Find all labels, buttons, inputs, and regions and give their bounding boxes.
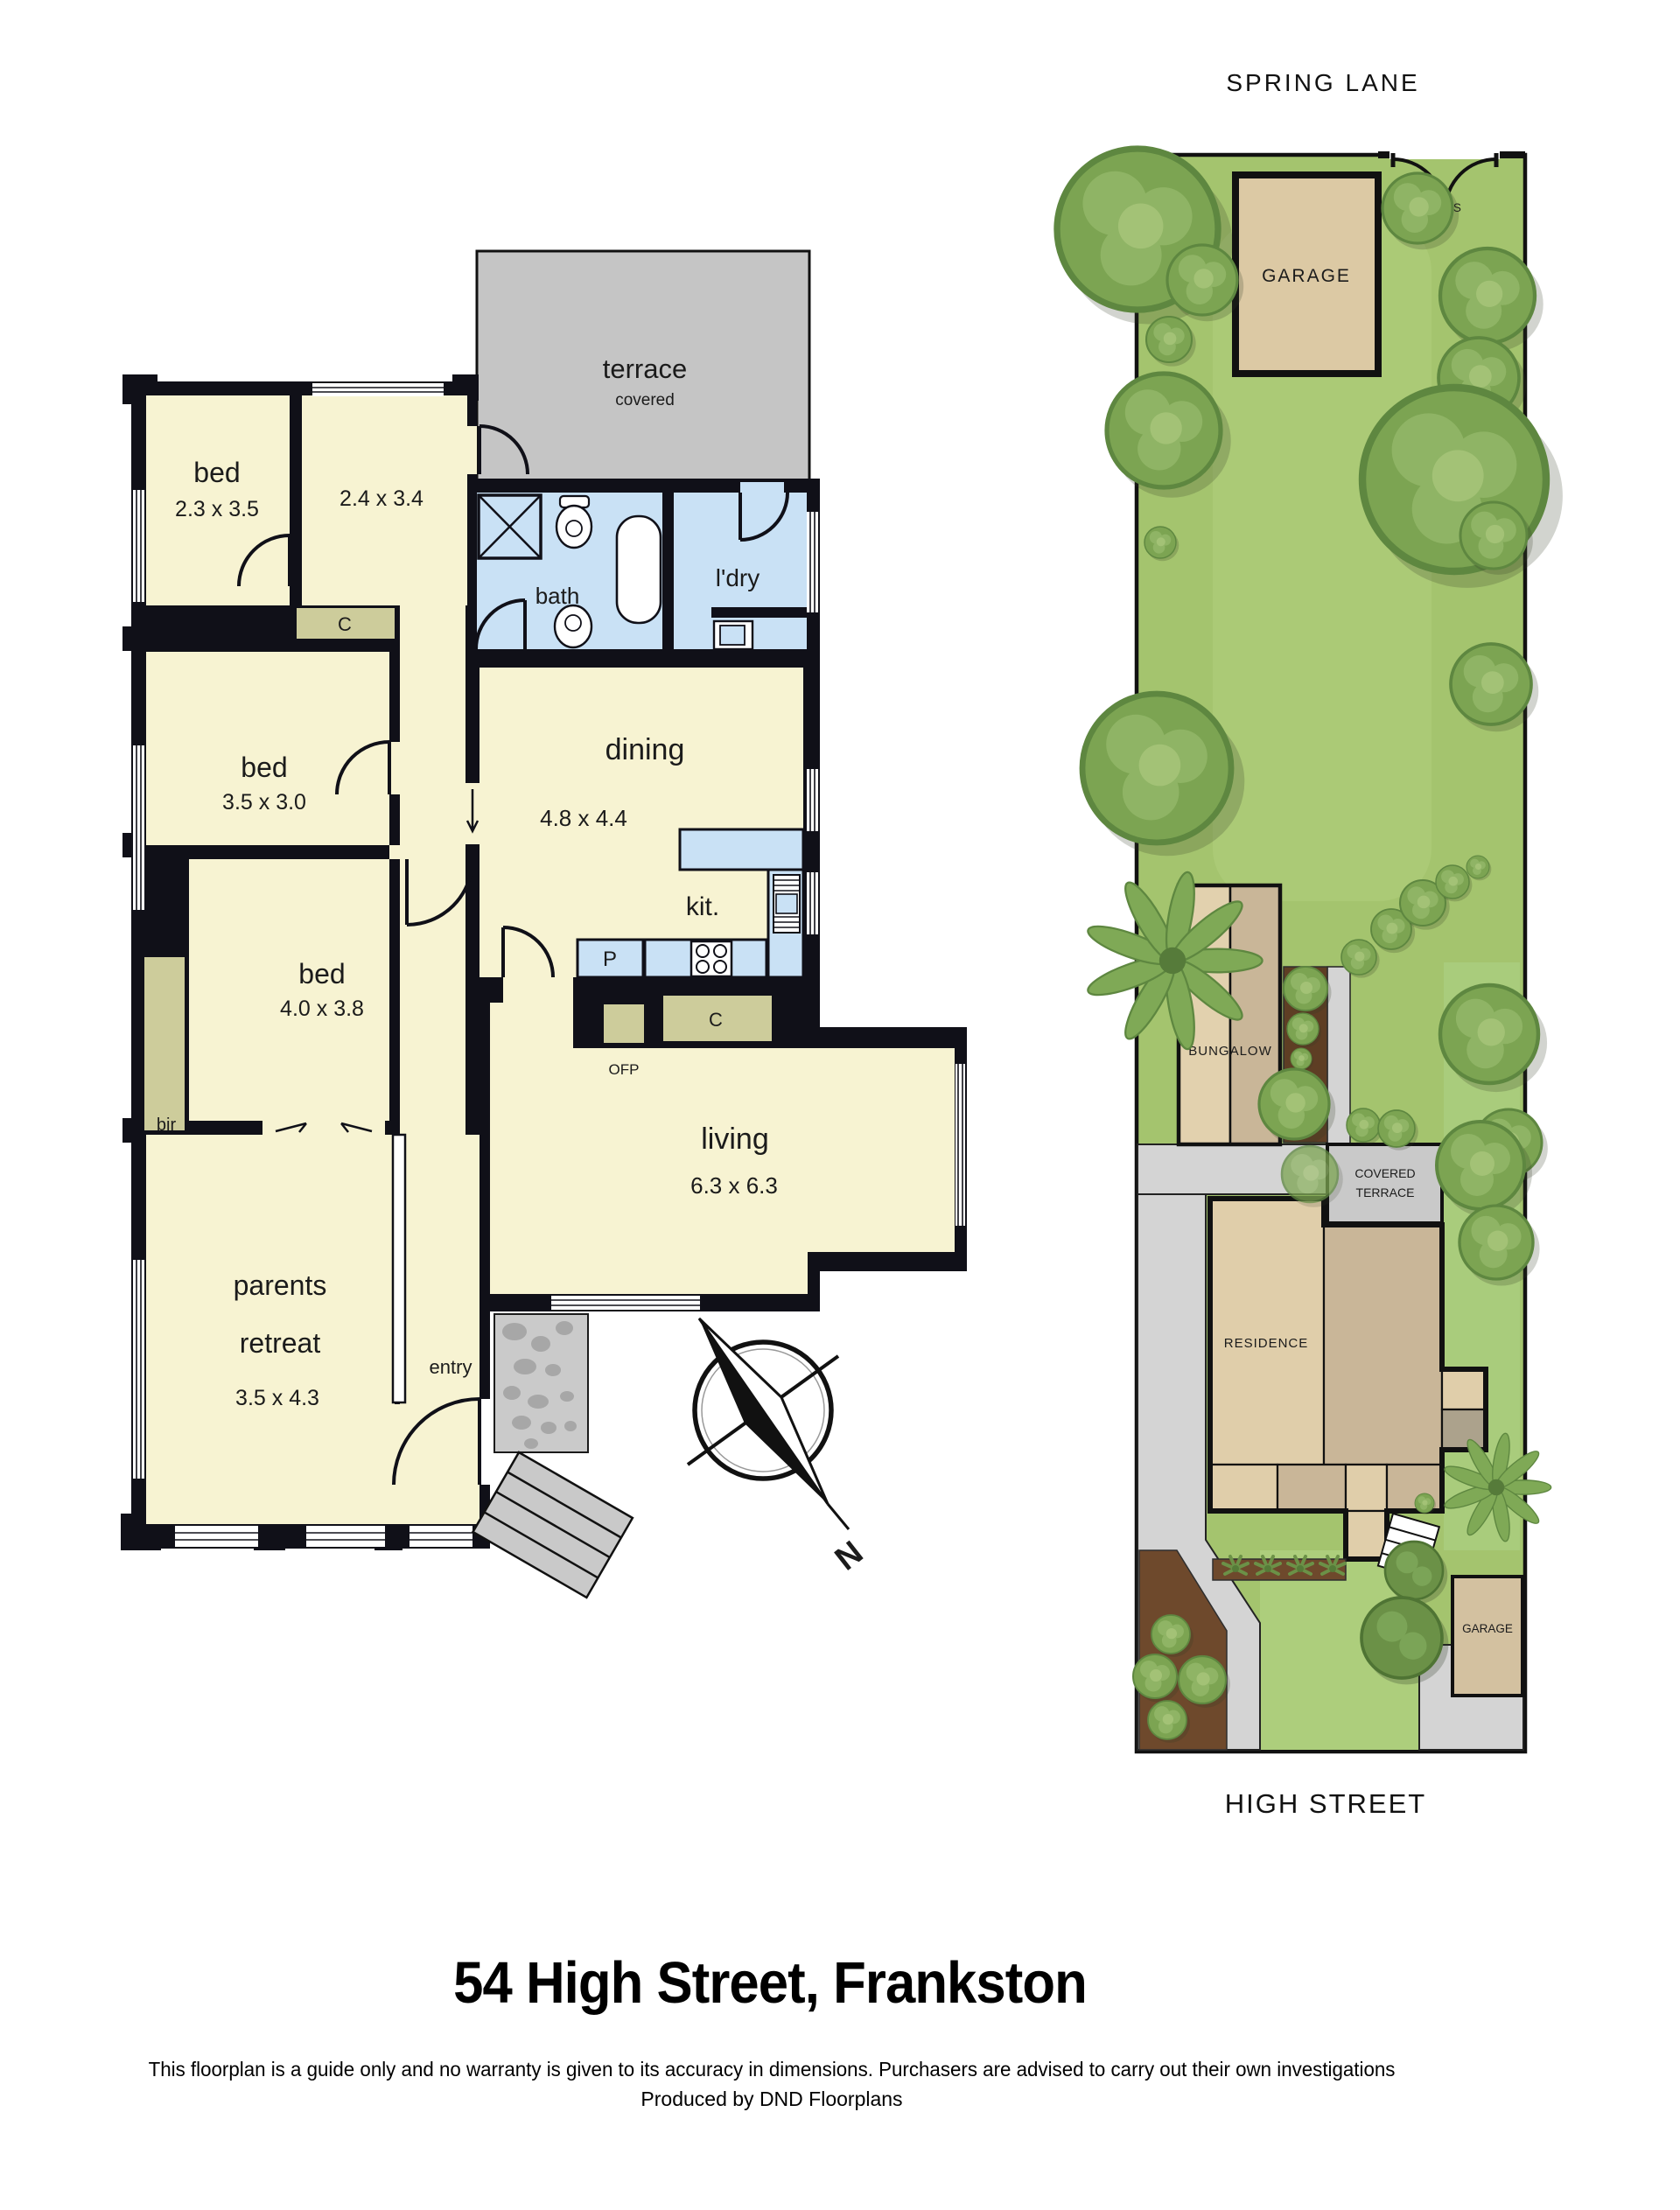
covered-terrace: COVERED TERRACE — [1327, 1144, 1442, 1223]
laundry-label: l'dry — [716, 564, 759, 591]
room-dining — [479, 668, 803, 977]
closet2-label: C — [709, 1009, 723, 1031]
bathtub-icon — [617, 516, 661, 623]
bed2-dims: 3.5 x 3.0 — [222, 790, 306, 815]
entry-partition — [393, 1135, 405, 1402]
dining-label: dining — [605, 733, 685, 766]
north-label: N — [829, 1535, 870, 1578]
entry-label: entry — [430, 1356, 472, 1378]
parents-dims: 3.5 x 4.3 — [235, 1386, 319, 1410]
produced-by-text: Produced by DND Floorplans — [0, 2088, 1543, 2111]
kitchen-label: kit. — [686, 892, 719, 921]
street-bottom-label: HIGH STREET — [1225, 1788, 1426, 1819]
dining-dims: 4.8 x 4.4 — [540, 805, 627, 831]
bed2-label: bed — [241, 752, 287, 783]
garage-bottom-label: GARAGE — [1462, 1622, 1513, 1635]
bed1-dims: 2.3 x 3.5 — [175, 497, 259, 521]
bed3-dims: 4.0 x 3.8 — [280, 997, 364, 1021]
bed3-label: bed — [298, 958, 345, 990]
covered-terrace-line2: TERRACE — [1356, 1185, 1415, 1199]
garage-top: GARAGE — [1235, 175, 1378, 374]
floorplan-page: N terrace covered bed 2.3 x 3.5 2.4 x 3.… — [0, 0, 1680, 2210]
site-plan: SPRING LANE GARAGE GATES — [1057, 69, 1563, 1819]
bath-label: bath — [535, 583, 580, 609]
robe-bir — [143, 956, 185, 1131]
sink-icon — [773, 875, 800, 933]
street-top-label: SPRING LANE — [1226, 69, 1419, 96]
parents-label2: retreat — [240, 1327, 321, 1359]
compass-icon: N — [688, 1318, 870, 1578]
parents-label1: parents — [234, 1269, 327, 1301]
floor-plan: N terrace covered bed 2.3 x 3.5 2.4 x 3.… — [121, 251, 967, 1598]
entry-porch — [473, 1314, 633, 1598]
disclaimer-text: This floorplan is a guide only and no wa… — [23, 2058, 1520, 2081]
living-dims: 6.3 x 6.3 — [690, 1172, 778, 1199]
toilet-icon — [556, 506, 591, 548]
page-title: 54 High Street, Frankston — [61, 1949, 1478, 2017]
room-bed2 — [146, 652, 389, 845]
residence-label: RESIDENCE — [1224, 1336, 1309, 1351]
porch-steps — [473, 1452, 633, 1598]
toilet2-icon — [555, 605, 591, 647]
laundry-notch — [740, 482, 784, 493]
covered-terrace-line1: COVERED — [1354, 1166, 1415, 1180]
hall — [400, 605, 465, 1135]
room24-dims: 2.4 x 3.4 — [339, 486, 423, 511]
room-bed3 — [189, 859, 389, 1121]
terrace-sub-label: covered — [615, 391, 675, 409]
bed1-label: bed — [193, 457, 240, 488]
terrace-label: terrace — [603, 353, 687, 384]
closet1-label: C — [338, 613, 352, 635]
ofp-box — [604, 1004, 644, 1043]
room-entry — [400, 1135, 479, 1524]
ofp-label: OFP — [609, 1061, 640, 1078]
garage-top-label: GARAGE — [1262, 266, 1351, 286]
garage-bottom: GARAGE — [1452, 1577, 1522, 1696]
living-label: living — [701, 1122, 768, 1156]
pantry-label: P — [603, 948, 617, 971]
bungalow-label: BUNGALOW — [1188, 1044, 1272, 1059]
stove-icon — [691, 941, 731, 976]
bir-label: bir — [157, 1115, 177, 1135]
plan-graphic: N terrace covered bed 2.3 x 3.5 2.4 x 3.… — [0, 0, 1680, 2210]
